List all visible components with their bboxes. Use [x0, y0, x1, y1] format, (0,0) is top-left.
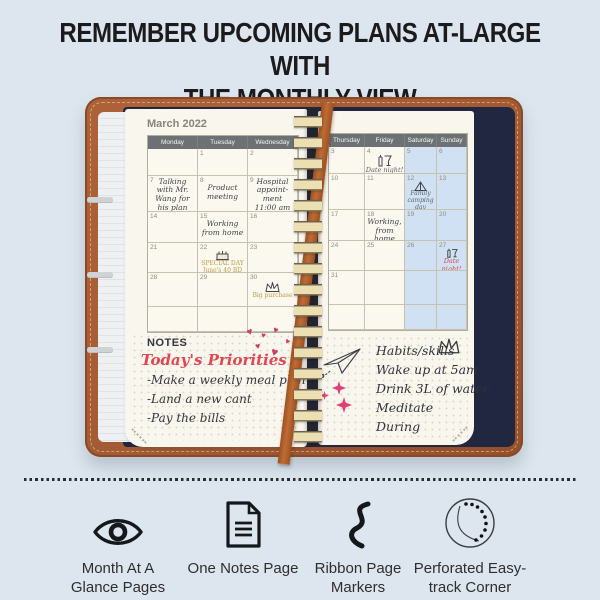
date-number: 19 [407, 211, 414, 218]
handwritten-note: Hospital appoint- ment 11:00 am [248, 178, 297, 213]
perforated-corner-icon [443, 496, 497, 550]
calendar-cell-empty [437, 271, 467, 305]
handwritten-note-big-purchase: Big purchase [248, 293, 297, 300]
date-number: 18 [367, 211, 374, 218]
date-number: 26 [407, 242, 414, 249]
calendar-left-page: March 2022 Monday Tuesday Wednesday 1 2 … [125, 109, 307, 447]
date-number: 9 [250, 177, 254, 184]
date-number: 22 [200, 244, 207, 251]
calendar-grid-right: Thursday Friday Saturday Sunday 3 4 Date… [328, 133, 468, 331]
handwritten-note: Talking with Mr. Wang for his plan [148, 178, 197, 213]
date-number: 7 [150, 177, 154, 184]
date-number: 2 [250, 150, 254, 157]
handwritten-note: Working, from home [365, 218, 404, 241]
feature-label: One Notes Page [168, 559, 318, 578]
date-number: 1 [200, 150, 204, 157]
priority-item: -Land a new cant [147, 392, 252, 406]
date-number: 27 [439, 242, 446, 249]
habit-note: Meditate [376, 400, 433, 415]
date-number: 11 [367, 175, 374, 182]
date-number: 30 [250, 274, 257, 281]
date-number: 14 [150, 213, 157, 220]
calendar-cell-mar-30: 30 Big purchase [248, 273, 298, 307]
handwritten-note-camping: Family camping day [405, 191, 436, 210]
date-number: 8 [200, 177, 204, 184]
elastic-loop [87, 272, 113, 277]
date-number: 5 [407, 148, 411, 155]
date-number: 6 [439, 148, 443, 155]
calendar-cell-empty [437, 305, 467, 330]
calendar-cell-mar-8: 8 Product meeting [198, 176, 248, 212]
calendar-cell-empty [365, 305, 405, 330]
handwritten-note-special-day: SPECIAL DAY June's 40 BD [198, 261, 247, 273]
habit-note: Wake up at 5am [376, 362, 478, 377]
notes-page-icon [222, 500, 264, 550]
calendar-cell-mar-6: 6 [437, 147, 467, 174]
calendar-cell: 1 [198, 149, 248, 176]
date-number: 28 [150, 274, 157, 281]
star-doodles [320, 381, 360, 417]
calendar-cell-empty [365, 271, 405, 305]
date-number: 31 [331, 272, 338, 279]
dotted-divider [24, 478, 576, 481]
calendar-cell-mar-31: 31 [329, 271, 365, 305]
calendar-cell-mar-9: 9 Hospital appoint- ment 11:00 am [248, 176, 298, 212]
calendar-grid-left: Monday Tuesday Wednesday 1 2 7 Talking w… [147, 135, 299, 333]
paper-airplane-doodle [320, 345, 364, 379]
day-header-wednesday: Wednesday [248, 136, 298, 149]
calendar-cell-mar-24: 24 [329, 241, 365, 271]
calendar-cell [148, 149, 198, 176]
elastic-loop [87, 347, 113, 352]
habit-note: During [376, 419, 420, 434]
day-header-sunday: Sunday [437, 134, 467, 147]
planner-notebook: March 2022 Monday Tuesday Wednesday 1 2 … [85, 97, 523, 457]
month-title: March 2022 [147, 118, 207, 130]
date-number: 10 [331, 175, 338, 182]
calendar-cell-mar-23: 23 [248, 243, 298, 273]
date-number: 23 [250, 244, 257, 251]
feature-label: Month At A Glance Pages [63, 559, 173, 597]
calendar-cell-mar-29: 29 [198, 273, 248, 307]
date-number: 4 [367, 148, 371, 155]
page-title-line1: REMEMBER UPCOMING PLANS AT-LARGE WITH [42, 16, 558, 82]
calendar-cell-mar-16: 16 [248, 212, 298, 243]
calendar-cell-mar-27: 27 Date night! [437, 241, 467, 271]
calendar-cell-mar-13: 13 [437, 174, 467, 210]
habit-note: Drink 3L of water [376, 381, 489, 396]
calendar-cell-mar-19: 19 [405, 210, 437, 241]
calendar-cell-mar-17: 17 [329, 210, 365, 241]
calendar-cell-mar-10: 10 [329, 174, 365, 210]
calendar-cell-mar-20: 20 [437, 210, 467, 241]
handwritten-note-date-night: Date night! [437, 258, 466, 271]
date-number: 13 [439, 175, 446, 182]
calendar-cell-mar-28: 28 [148, 273, 198, 307]
calendar-cell-mar-14: 14 [148, 212, 198, 243]
calendar-cell-mar-21: 21 [148, 243, 198, 273]
calendar-cell-mar-12: 12 Family camping day [405, 174, 437, 210]
date-number: 25 [367, 242, 374, 249]
day-header-friday: Friday [365, 134, 405, 147]
priority-item: -Make a weekly meal plan [147, 373, 306, 387]
date-number: 21 [150, 244, 157, 251]
calendar-cell-empty [405, 305, 437, 330]
date-number: 20 [439, 211, 446, 218]
calendar-cell-empty [148, 307, 198, 332]
date-number: 17 [331, 211, 338, 218]
calendar-cell: 2 [248, 149, 298, 176]
day-header-tuesday: Tuesday [198, 136, 248, 149]
date-number: 29 [200, 274, 207, 281]
feature-label: Perforated Easy-track Corner [400, 559, 540, 597]
calendar-cell-mar-25: 25 [365, 241, 405, 271]
calendar-cell-empty [329, 305, 365, 330]
priority-item: -Pay the bills [147, 411, 225, 425]
handwritten-note: Product meeting [198, 184, 247, 201]
calendar-cell-mar-3: 3 [329, 147, 365, 174]
calendar-cell-mar-7: 7 Talking with Mr. Wang for his plan [148, 176, 198, 212]
calendar-cell-mar-11: 11 [365, 174, 405, 210]
notes-section-label: NOTES [147, 337, 187, 349]
handwritten-note: Working from home [198, 220, 247, 237]
date-number: 24 [331, 242, 338, 249]
ribbon-icon [343, 500, 373, 550]
feature-perforated-corner: Perforated Easy-track Corner [400, 496, 540, 597]
calendar-cell-mar-15: 15 Working from home [198, 212, 248, 243]
date-number: 15 [200, 213, 207, 220]
elastic-loop [87, 197, 113, 202]
date-number: 16 [250, 213, 257, 220]
day-header-monday: Monday [148, 136, 198, 149]
feature-label: Ribbon Page Markers [303, 559, 413, 597]
spiral-binding [294, 113, 322, 447]
handwritten-note-date-night: Date night! [365, 167, 404, 174]
calendar-cell-mar-4: 4 Date night! [365, 147, 405, 174]
day-header-saturday: Saturday [405, 134, 437, 147]
day-header-thursday: Thursday [329, 134, 365, 147]
feature-month-at-a-glance: Month At A Glance Pages [63, 496, 173, 597]
date-number: 3 [331, 148, 335, 155]
calendar-cell-mar-22: 22 SPECIAL DAY June's 40 BD [198, 243, 248, 273]
calendar-cell-mar-18: 18 Working, from home [365, 210, 405, 241]
calendar-cell-empty [405, 271, 437, 305]
calendar-right-page: Thursday Friday Saturday Sunday 3 4 Date… [318, 111, 474, 445]
date-number: 12 [407, 175, 414, 182]
feature-one-notes-page: One Notes Page [168, 496, 318, 578]
calendar-cell-mar-5: 5 [405, 147, 437, 174]
feature-ribbon-page-markers: Ribbon Page Markers [303, 496, 413, 597]
calendar-cell-mar-26: 26 [405, 241, 437, 271]
habit-note: Habits/skills [376, 343, 454, 358]
eye-icon [91, 514, 145, 550]
